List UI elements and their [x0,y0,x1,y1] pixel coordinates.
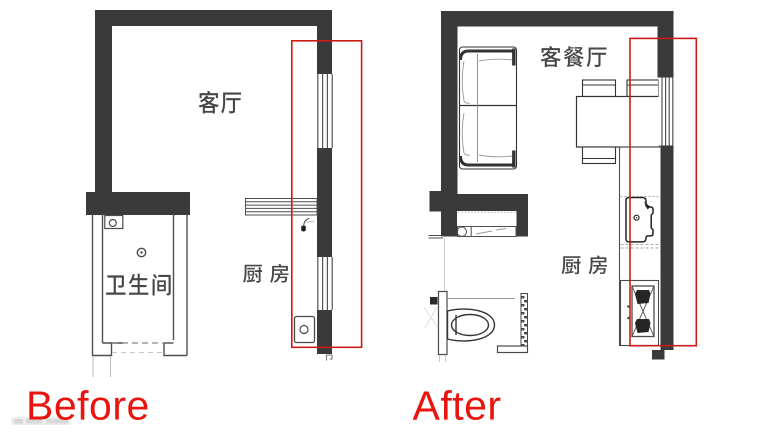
svg-text:After: After [413,383,502,429]
svg-text:Before: Before [26,383,150,429]
